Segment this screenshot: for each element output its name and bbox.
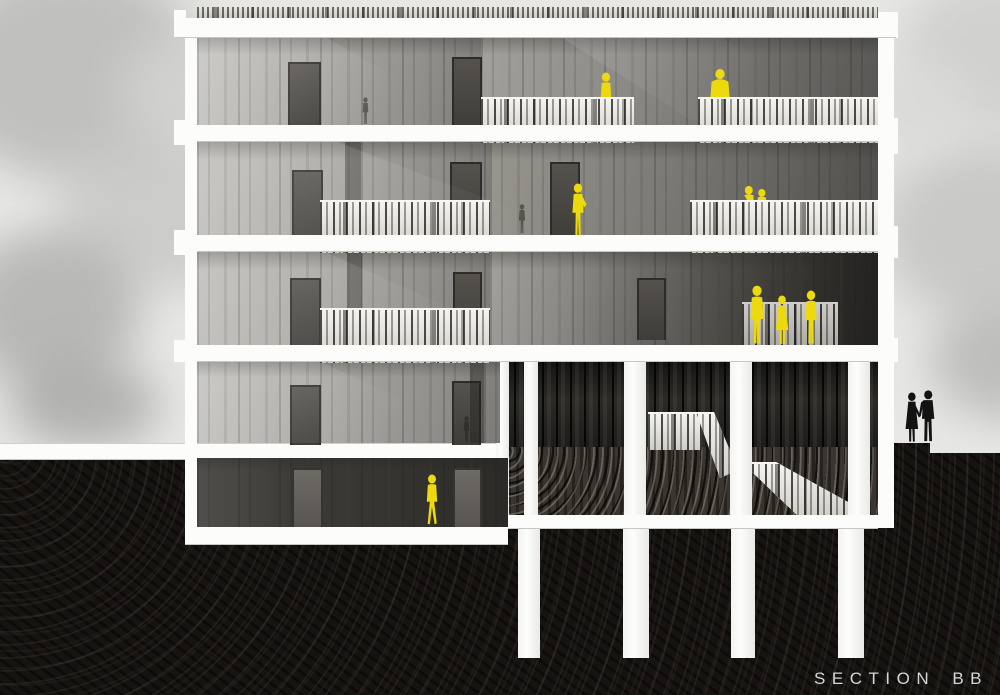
left-wall-tab <box>174 120 186 145</box>
wall-shadow-figure <box>360 97 371 125</box>
foundation-pile <box>731 527 755 658</box>
wall-shadow-figure <box>461 416 472 443</box>
pilotis-column <box>524 361 538 517</box>
stair-upper-landing <box>648 412 702 450</box>
pilotis-ground-slab <box>500 515 878 529</box>
section-caption: SECTION BB <box>814 669 988 689</box>
wall-shadow-figure <box>516 203 528 235</box>
pilotis-column <box>624 361 646 517</box>
pilotis-column <box>730 361 752 517</box>
floor-slab <box>197 125 878 142</box>
foundation-pile <box>838 527 864 658</box>
third-floor-door <box>637 278 666 340</box>
top-floor-door <box>288 62 321 127</box>
second-floor-woman <box>567 183 589 237</box>
third-floor-person-c <box>800 290 822 345</box>
pilotis-column <box>848 361 870 517</box>
basement-floor-slab <box>185 527 508 545</box>
cloud <box>880 140 1000 320</box>
basement-door <box>453 468 482 529</box>
basement-door <box>292 468 323 529</box>
third-floor-person-b <box>770 295 794 345</box>
floor-slab <box>197 345 878 362</box>
third-floor-door <box>290 278 321 347</box>
basement-walker <box>421 474 443 526</box>
left-cut-wall <box>185 18 197 544</box>
right-wall-tab <box>880 226 898 258</box>
left-wall-tab <box>174 230 186 255</box>
third-floor-person-a <box>744 285 770 345</box>
floor-slab <box>197 235 878 252</box>
left-wall-tab <box>174 340 186 362</box>
foundation-pile <box>518 527 540 658</box>
right-wall-tab <box>880 118 898 154</box>
ground-story-door <box>290 385 321 445</box>
top-floor-door <box>452 57 482 127</box>
foundation-pile <box>623 527 649 658</box>
section-drawing: SECTION BB <box>0 0 1000 695</box>
cloud <box>10 360 160 450</box>
right-cut-wall <box>878 14 894 528</box>
wall-stain <box>470 361 484 443</box>
ground-couple-silhouette <box>901 390 941 444</box>
top-floor-room <box>197 37 481 125</box>
right-wall-tab <box>880 338 898 362</box>
second-floor-door <box>292 170 323 237</box>
roof-slab <box>176 18 896 38</box>
